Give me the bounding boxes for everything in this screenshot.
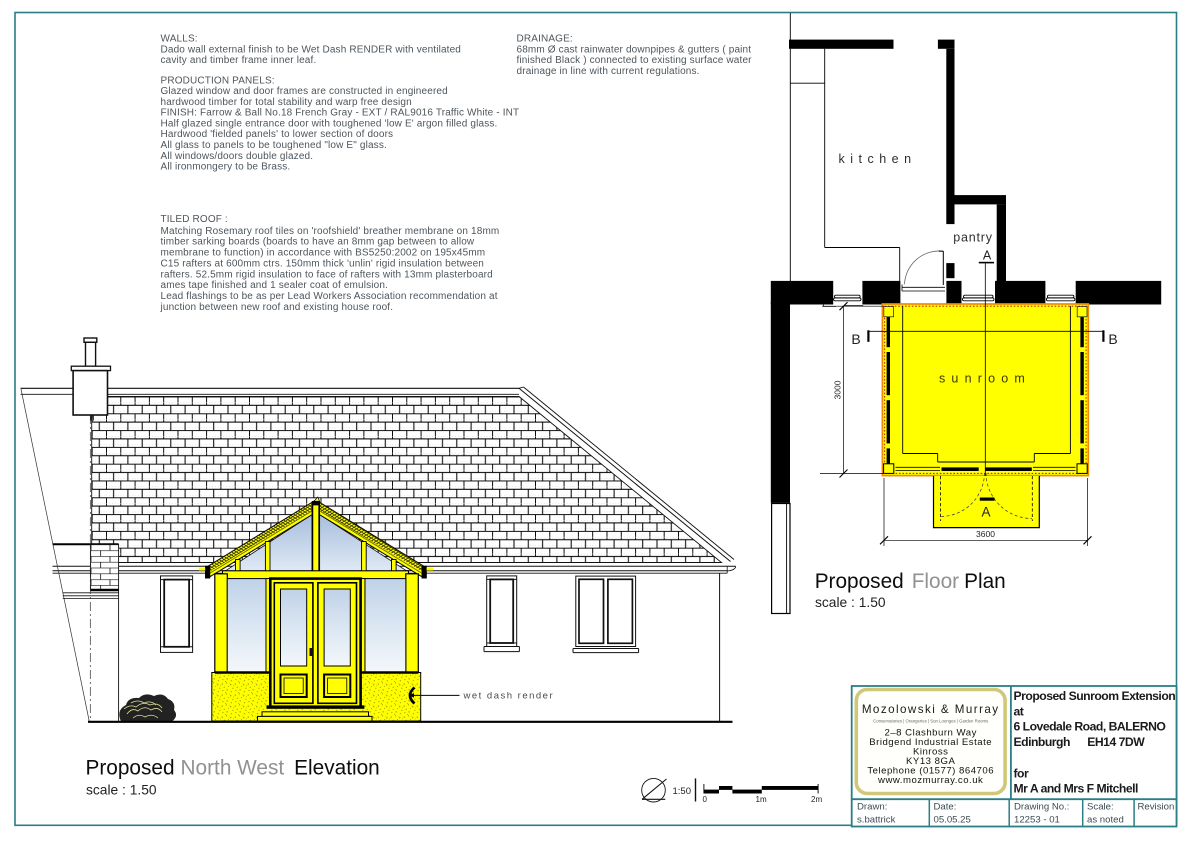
- svg-text:www.mozmurray.co.uk: www.mozmurray.co.uk: [877, 775, 983, 786]
- svg-text:Lead flashings to be as per Le: Lead flashings to be as per Lead Workers…: [161, 291, 498, 302]
- svg-text:A: A: [981, 505, 990, 520]
- svg-text:for: for: [1014, 767, 1030, 781]
- svg-text:as noted: as noted: [1087, 815, 1124, 826]
- svg-text:All glass to panels to be toug: All glass to panels to be toughened "low…: [161, 140, 387, 151]
- svg-text:Conservatories | Orangeries |: Conservatories | Orangeries | Sun Lounge…: [873, 719, 988, 724]
- svg-text:WALLS:: WALLS:: [161, 33, 198, 44]
- svg-text:68mm Ø cast rainwater downpipe: 68mm Ø cast rainwater downpipes & gutter…: [517, 44, 752, 55]
- svg-text:3000: 3000: [833, 380, 843, 399]
- svg-text:PRODUCTION PANELS:: PRODUCTION PANELS:: [161, 75, 275, 86]
- svg-text:Matching Rosemary roof tiles o: Matching Rosemary roof tiles on 'roofshi…: [161, 226, 500, 237]
- svg-text:0: 0: [703, 795, 708, 804]
- svg-text:A: A: [983, 249, 992, 263]
- svg-text:Half glazed single entrance do: Half glazed single entrance door with to…: [161, 118, 498, 129]
- svg-text:All ironmongery to be Brass.: All ironmongery to be Brass.: [161, 162, 291, 173]
- svg-text:ames tape finished and 1 seale: ames tape finished and 1 sealer coat of …: [161, 280, 388, 291]
- svg-text:membrane to function) in accor: membrane to function) in accordance with…: [161, 248, 486, 259]
- svg-text:Scale:: Scale:: [1087, 802, 1114, 813]
- svg-text:Date:: Date:: [934, 802, 957, 813]
- svg-text:finished Black ) connected to: finished Black ) connected to existing s…: [517, 55, 753, 66]
- svg-text:wet dash render: wet dash render: [463, 691, 555, 702]
- svg-text:ProposedNorth WestElevation: ProposedNorth WestElevation: [86, 757, 380, 780]
- svg-text:C15 rafters at 600mm ctrs. 150: C15 rafters at 600mm ctrs. 150mm thick '…: [161, 259, 485, 270]
- svg-text:Dado wall external finish to b: Dado wall external finish to be Wet Dash…: [161, 44, 462, 55]
- svg-text:05.05.25: 05.05.25: [934, 815, 971, 826]
- svg-text:2m: 2m: [811, 795, 822, 804]
- svg-text:Mozolowski & Murray: Mozolowski & Murray: [862, 703, 1000, 716]
- svg-text:Revision: Revision: [1138, 802, 1175, 813]
- svg-text:3600: 3600: [976, 529, 995, 539]
- svg-text:s.battrick: s.battrick: [857, 815, 896, 826]
- svg-text:12253 - 01: 12253 - 01: [1014, 815, 1060, 826]
- svg-text:pantry: pantry: [953, 231, 993, 245]
- svg-text:Proposed Sunroom Extension: Proposed Sunroom Extension: [1014, 689, 1176, 703]
- svg-text:6 Lovedale Road, BALERNO: 6 Lovedale Road, BALERNO: [1014, 720, 1166, 734]
- svg-text:1m: 1m: [756, 795, 767, 804]
- svg-text:hardwood timber for total stab: hardwood timber for total stability and …: [161, 97, 412, 108]
- svg-text:drainage in line with current: drainage in line with current regulation…: [517, 66, 700, 77]
- svg-text:kitchen: kitchen: [838, 152, 916, 166]
- svg-text:1:50: 1:50: [673, 786, 692, 797]
- svg-text:B: B: [851, 331, 860, 347]
- svg-text:scale : 1.50: scale : 1.50: [815, 595, 886, 610]
- svg-text:Mr A and Mrs F Mitchell: Mr A and Mrs F Mitchell: [1014, 782, 1138, 796]
- svg-text:DRAINAGE:: DRAINAGE:: [517, 33, 573, 44]
- svg-text:Edinburgh EH14 7DW: Edinburgh EH14 7DW: [1014, 735, 1146, 749]
- svg-text:TILED ROOF :: TILED ROOF :: [161, 214, 228, 225]
- svg-text:Hardwood 'fielded panels' to l: Hardwood 'fielded panels' to lower secti…: [161, 129, 394, 140]
- svg-text:rafters. 52.5mm rigid insulati: rafters. 52.5mm rigid insulation to face…: [161, 270, 493, 281]
- svg-text:B: B: [1108, 331, 1117, 347]
- svg-text:timber sarking boards (boards: timber sarking boards (boards to have an…: [161, 237, 475, 248]
- svg-text:Glazed window and door frames: Glazed window and door frames are constr…: [161, 86, 448, 97]
- svg-text:at: at: [1014, 704, 1024, 718]
- svg-text:Drawing No.:: Drawing No.:: [1014, 802, 1069, 813]
- svg-text:Drawn:: Drawn:: [857, 802, 887, 813]
- svg-text:FINISH: Farrow & Ball No.18 Fr: FINISH: Farrow & Ball No.18 French Gray …: [161, 108, 520, 119]
- svg-text:All windows/doors double glaze: All windows/doors double glazed.: [161, 151, 314, 162]
- svg-text:junction between new roof and: junction between new roof and existing h…: [160, 302, 394, 313]
- svg-text:scale : 1.50: scale : 1.50: [86, 783, 157, 798]
- svg-text:cavity and timber frame inner: cavity and timber frame inner leaf.: [161, 55, 317, 66]
